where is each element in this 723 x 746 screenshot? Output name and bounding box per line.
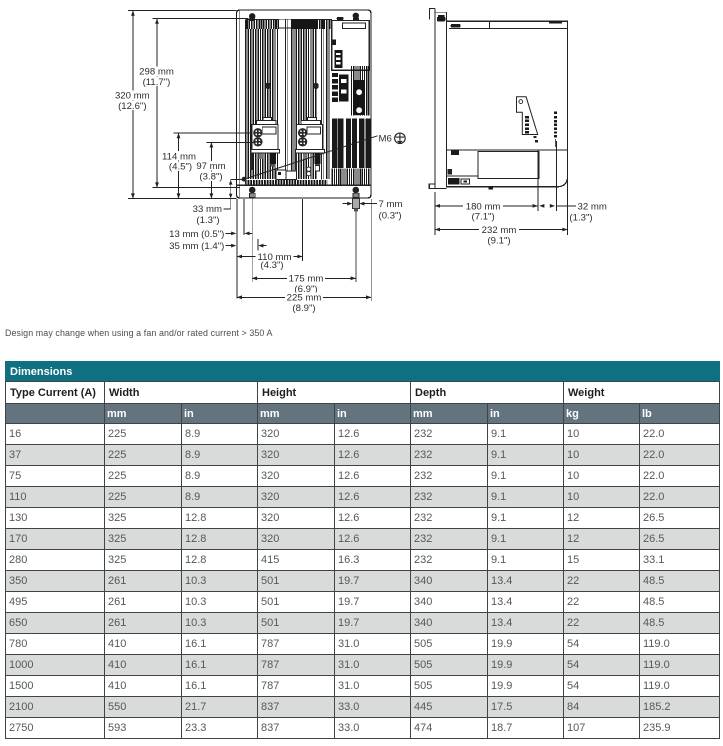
svg-text:175 mm: 175 mm [289, 274, 324, 285]
svg-text:13 mm (0.5"): 13 mm (0.5") [169, 229, 224, 240]
svg-text:7 mm: 7 mm [379, 199, 403, 210]
svg-text:(8.9"): (8.9") [292, 303, 315, 314]
svg-text:(11.7"): (11.7") [143, 77, 171, 88]
svg-text:33 mm: 33 mm [193, 204, 222, 215]
svg-text:(9.1"): (9.1") [487, 235, 510, 246]
svg-text:(3.8"): (3.8") [199, 171, 222, 182]
svg-text:180 mm: 180 mm [466, 201, 501, 212]
svg-text:(4.5"): (4.5") [169, 162, 192, 173]
svg-text:(1.3"): (1.3") [196, 215, 219, 226]
svg-text:(7.1"): (7.1") [472, 212, 495, 223]
svg-text:35 mm (1.4"): 35 mm (1.4") [169, 241, 224, 252]
svg-text:32 mm: 32 mm [578, 201, 607, 212]
svg-text:M6: M6 [379, 134, 392, 145]
svg-text:225 mm: 225 mm [287, 293, 322, 304]
svg-text:(1.3"): (1.3") [569, 213, 592, 224]
svg-text:(12.6"): (12.6") [118, 101, 146, 112]
svg-text:(4.3"): (4.3") [260, 260, 283, 271]
svg-text:232 mm: 232 mm [482, 225, 517, 236]
svg-text:(0.3"): (0.3") [379, 210, 402, 221]
